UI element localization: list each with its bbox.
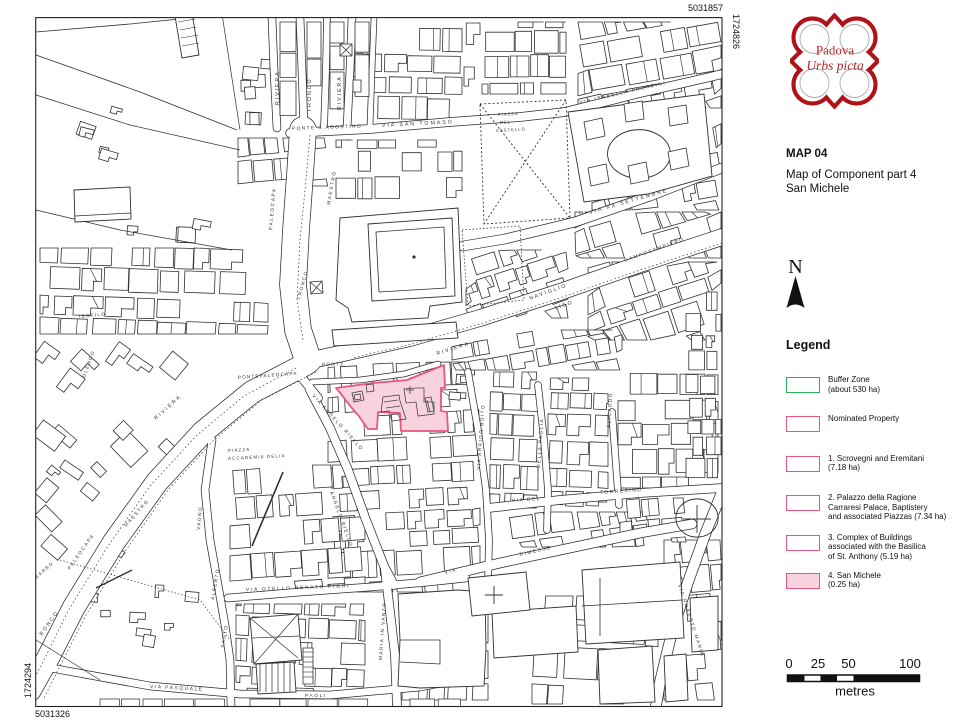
- svg-text:100: 100: [899, 656, 921, 671]
- svg-text:Urbs picta: Urbs picta: [806, 58, 864, 73]
- svg-text:DEL: DEL: [500, 119, 511, 125]
- svg-text:TRONCO: TRONCO: [307, 78, 313, 112]
- svg-text:metres: metres: [835, 684, 875, 699]
- svg-text:PAOLI: PAOLI: [305, 693, 327, 699]
- svg-text:RIVIERA: RIVIERA: [337, 75, 343, 110]
- svg-text:RIVIERA: RIVIERA: [275, 70, 281, 105]
- svg-text:PONTE: PONTE: [322, 361, 345, 367]
- svg-text:Padova: Padova: [816, 43, 855, 58]
- svg-text:N: N: [788, 256, 802, 278]
- svg-text:25: 25: [811, 656, 825, 671]
- svg-text:0: 0: [785, 656, 792, 671]
- svg-text:50: 50: [841, 656, 855, 671]
